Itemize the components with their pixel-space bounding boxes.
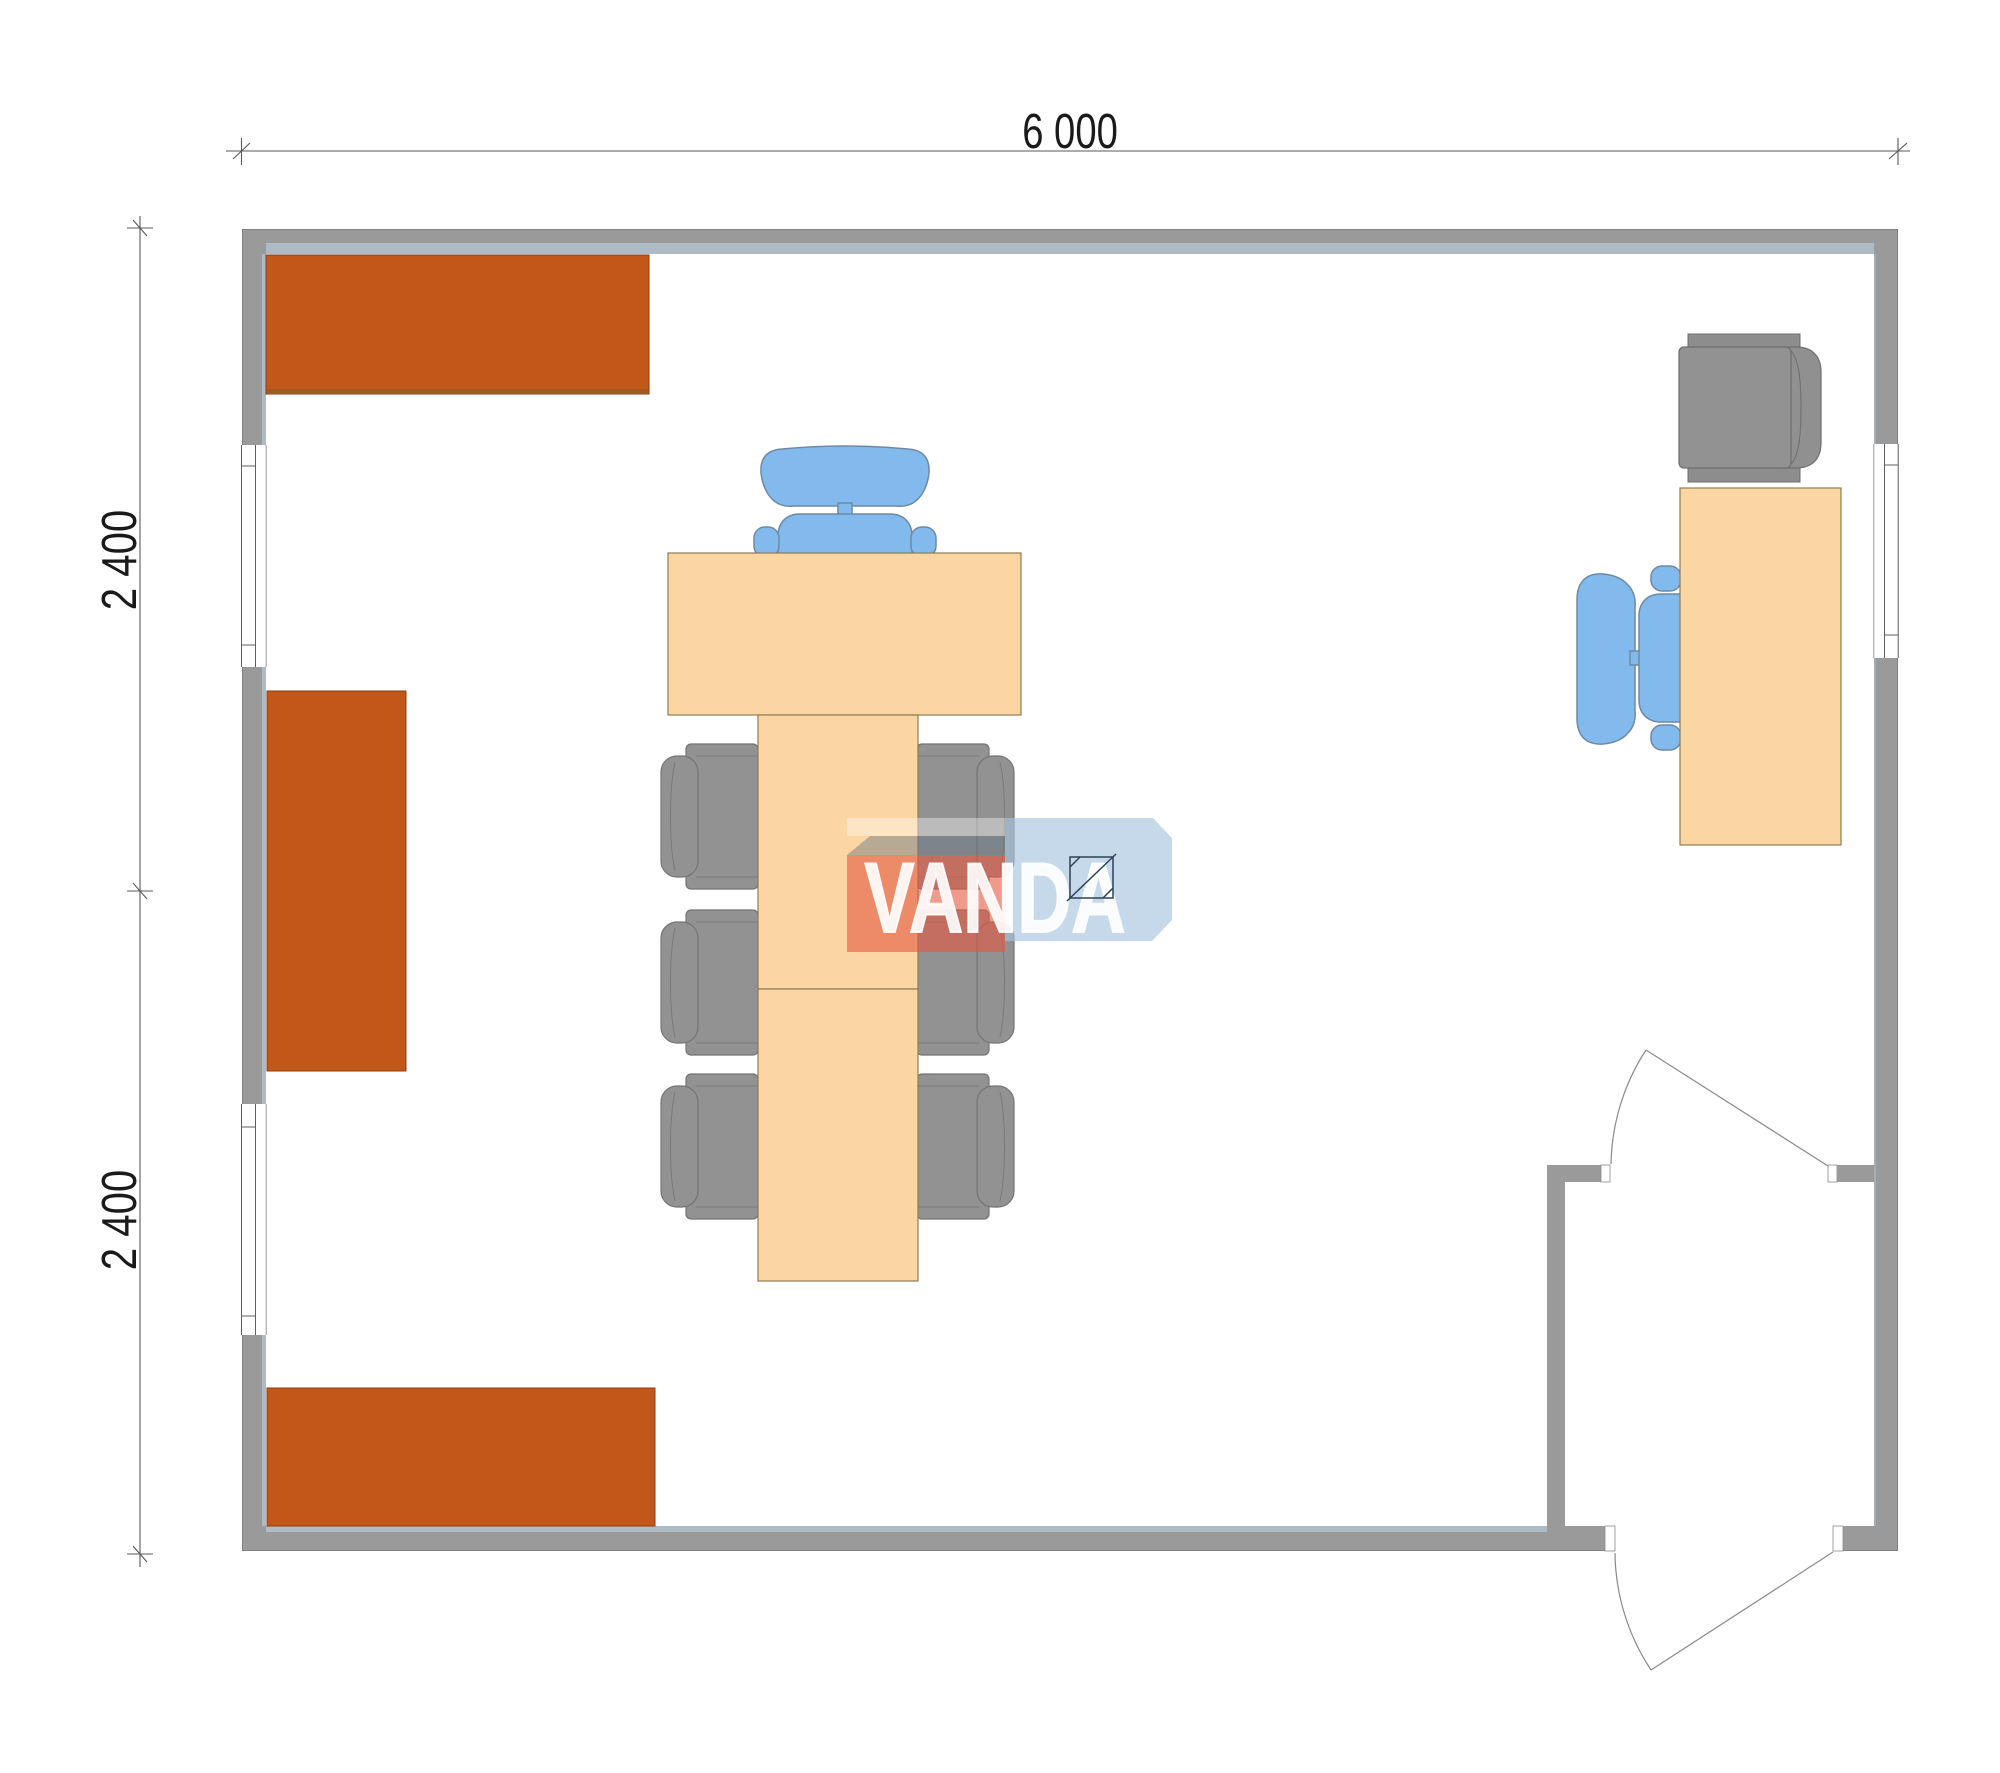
svg-text:6 000: 6 000 xyxy=(1022,105,1118,160)
svg-text:2 400: 2 400 xyxy=(92,510,147,611)
svg-text:2 400: 2 400 xyxy=(92,1170,147,1271)
